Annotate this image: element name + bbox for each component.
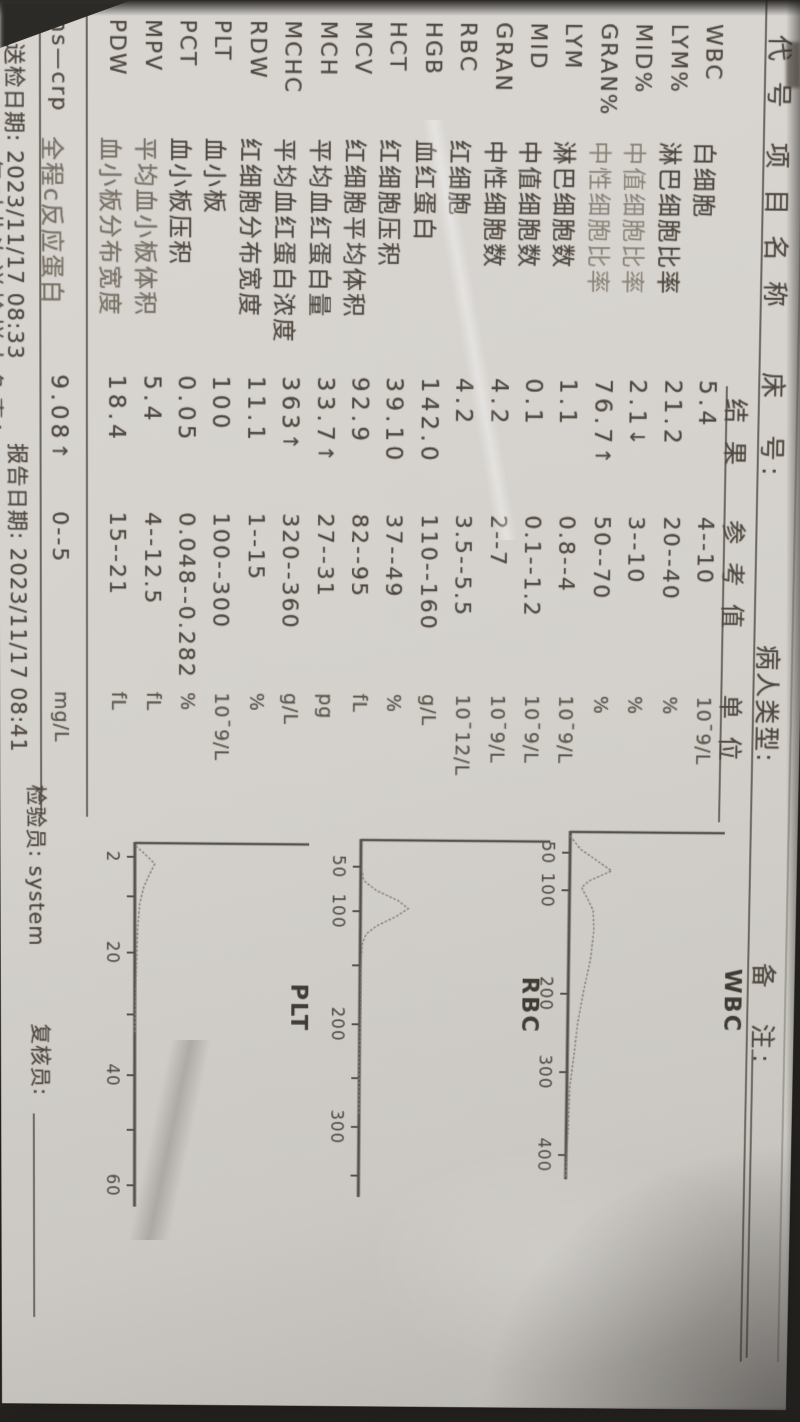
axis-tick-label: 300: [534, 1055, 554, 1090]
photo-scene: 代 号 项 目 名 称 床 号: 病人类型: 备 注: 结 果 参 考 值 单 …: [0, 0, 800, 1422]
axis-tick-label: 2: [102, 851, 122, 863]
rbc-histogram: 50100200300RBC: [326, 839, 551, 1199]
photo-of-lab-report: 代 号 项 目 名 称 床 号: 病人类型: 备 注: 结 果 参 考 值 单 …: [0, 0, 800, 1422]
axis-tick-label: 300: [326, 1109, 346, 1144]
x-axis: [358, 839, 361, 1197]
lab-report-paper: 代 号 项 目 名 称 床 号: 病人类型: 备 注: 结 果 参 考 值 单 …: [0, 0, 800, 1410]
x-axis: [566, 831, 571, 1179]
axis-tick-label: 200: [327, 1007, 347, 1042]
distribution-curve: [566, 836, 613, 1177]
axis-tick-label: 400: [533, 1138, 553, 1173]
axis-tick-label: 100: [536, 873, 556, 908]
wbc-histogram: 50100200300400WBC: [533, 831, 748, 1181]
axis-tick-label: 100: [328, 893, 348, 928]
plot-left-border: [135, 843, 309, 845]
histograms-canvas: 50100200300400WBC50100200300RBC2204060PL…: [0, 0, 800, 1410]
histogram-title: PLT: [285, 983, 311, 1032]
histogram-title: WBC: [718, 969, 745, 1034]
histogram-title: RBC: [516, 977, 543, 1034]
axis-tick-label: 60: [102, 1174, 122, 1197]
axis-tick-label: 40: [102, 1063, 122, 1086]
plt-histogram: 2204060PLT: [102, 842, 312, 1209]
axis-tick-label: 50: [537, 841, 557, 865]
plot-left-border: [570, 832, 724, 833]
axis-tick-label: 50: [328, 855, 348, 879]
distribution-curve: [135, 846, 155, 1034]
distribution-curve: [359, 869, 409, 1115]
plot-left-border: [361, 840, 550, 842]
axis-tick-label: 20: [102, 941, 122, 964]
